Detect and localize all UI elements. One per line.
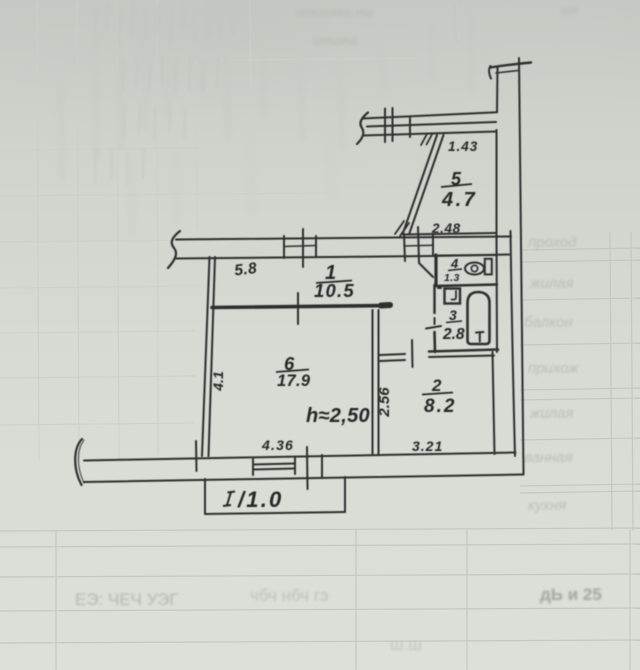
svg-text:/1.0: /1.0 xyxy=(237,487,284,512)
svg-text:шишшиш нш: шишшиш нш xyxy=(296,4,373,19)
svg-text:2.48: 2.48 xyxy=(431,221,461,236)
svg-text:ш.ш: ш.ш xyxy=(390,635,422,654)
svg-text:3.21: 3.21 xyxy=(412,438,443,454)
svg-text:2.56: 2.56 xyxy=(376,387,393,418)
svg-text:кухня: кухня xyxy=(528,497,566,514)
svg-text:жилая: жилая xyxy=(529,275,573,292)
svg-text:2.8: 2.8 xyxy=(442,326,465,343)
svg-text:3: 3 xyxy=(449,307,457,323)
svg-text:4.36: 4.36 xyxy=(261,437,294,453)
svg-text:4.7: 4.7 xyxy=(441,189,477,211)
svg-text:1.43: 1.43 xyxy=(448,139,478,154)
svg-text:балкон: балкон xyxy=(524,314,573,331)
svg-text:проход: проход xyxy=(528,234,577,251)
svg-text:ванная: ванная xyxy=(524,449,573,466)
svg-text:ЕЭ: ЧЕЧ УЭГ: ЕЭ: ЧЕЧ УЭГ xyxy=(75,590,179,609)
svg-text:5.8: 5.8 xyxy=(233,260,258,280)
svg-text:жилая: жилая xyxy=(529,405,573,422)
svg-text:10.5: 10.5 xyxy=(314,280,355,301)
svg-text:8.2: 8.2 xyxy=(424,396,456,417)
svg-text:ши: ши xyxy=(560,2,578,17)
svg-text:шишиш: шишиш xyxy=(312,32,358,47)
svg-text:чбч нбч гэ: чбч нбч гэ xyxy=(250,586,329,605)
svg-text:2: 2 xyxy=(431,376,442,395)
svg-text:17.9: 17.9 xyxy=(277,372,311,390)
svg-text:дЬ и 25: дЬ и 25 xyxy=(540,585,602,604)
svg-text:1.3: 1.3 xyxy=(444,272,460,284)
svg-text:h≈2,50: h≈2,50 xyxy=(306,405,370,427)
svg-text:прихож: прихож xyxy=(528,360,579,377)
svg-text:4.1: 4.1 xyxy=(210,371,226,392)
